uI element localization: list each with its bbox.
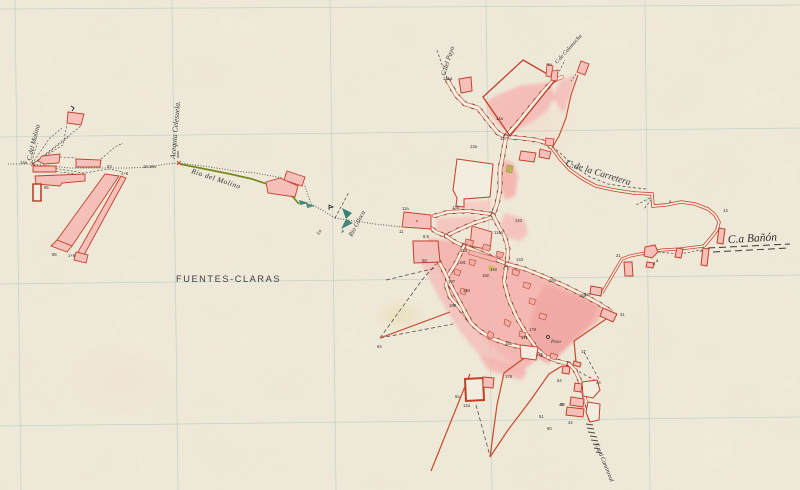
svg-text:51: 51 (539, 414, 544, 419)
svg-text:85: 85 (52, 252, 57, 257)
svg-text:171: 171 (521, 335, 529, 340)
svg-text:1+8: 1+8 (68, 253, 76, 258)
svg-text:14a: 14a (496, 116, 504, 121)
svg-text:181: 181 (459, 260, 467, 265)
svg-text:19 19a: 19 19a (143, 164, 156, 169)
svg-text:143: 143 (515, 218, 523, 223)
svg-text:54: 54 (557, 378, 562, 383)
svg-text:13a: 13a (470, 144, 478, 149)
svg-text:179: 179 (505, 374, 513, 379)
svg-text:6.9: 6.9 (423, 234, 429, 239)
svg-text:143: 143 (516, 257, 524, 262)
svg-text:188: 188 (449, 303, 457, 308)
svg-text:11a: 11a (402, 206, 409, 211)
svg-text:12a: 12a (463, 403, 471, 408)
svg-text:1144: 1144 (494, 230, 504, 235)
svg-text:44: 44 (596, 380, 601, 385)
svg-text:192: 192 (482, 273, 490, 278)
svg-text:63: 63 (107, 164, 112, 169)
svg-text:42: 42 (568, 420, 573, 425)
svg-text:17: 17 (581, 349, 586, 354)
svg-text:187: 187 (448, 279, 456, 284)
svg-text:135: 135 (452, 205, 460, 210)
svg-text:181: 181 (505, 341, 513, 346)
svg-text:50: 50 (547, 426, 552, 431)
svg-text:Pozo: Pozo (550, 340, 562, 345)
svg-text:58: 58 (422, 258, 427, 263)
svg-text:13: 13 (723, 208, 728, 213)
svg-text:FUENTES-CLARAS: FUENTES-CLARAS (176, 274, 281, 284)
svg-text:167: 167 (584, 292, 592, 297)
svg-text:1+8: 1+8 (121, 171, 129, 176)
svg-text:153: 153 (460, 248, 468, 253)
svg-text:40: 40 (560, 402, 565, 407)
svg-text:21: 21 (616, 253, 621, 258)
svg-text:95: 95 (44, 185, 49, 190)
svg-text:184: 184 (463, 288, 471, 293)
svg-text:11: 11 (399, 229, 404, 234)
svg-text:140: 140 (490, 267, 498, 272)
svg-text:176: 176 (536, 352, 544, 357)
svg-text:178: 178 (529, 327, 537, 332)
svg-text:1a: 1a (547, 62, 552, 67)
svg-text:6a: 6a (455, 394, 460, 399)
svg-text:147: 147 (500, 136, 508, 141)
svg-text:64: 64 (377, 344, 382, 349)
svg-text:164: 164 (549, 278, 557, 283)
svg-text:31: 31 (620, 312, 625, 317)
